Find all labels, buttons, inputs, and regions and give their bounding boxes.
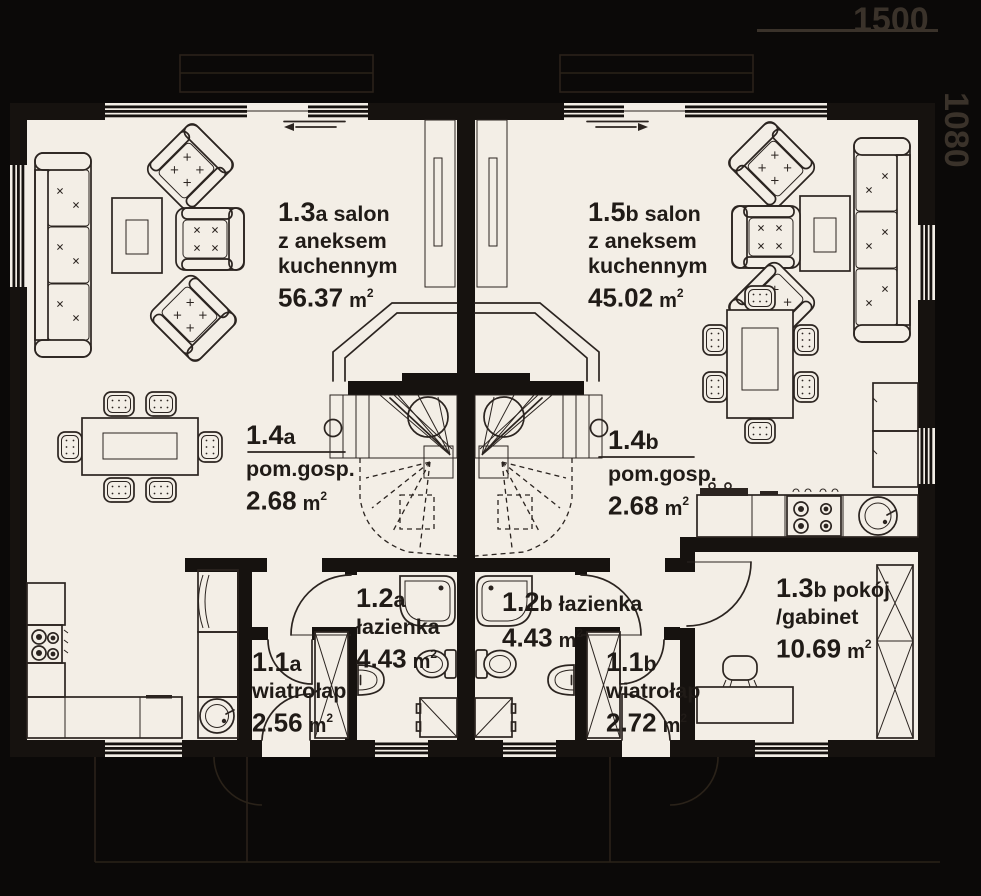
sofa-right (854, 138, 910, 342)
dimension-height-label: 1080 (936, 92, 975, 168)
room-label-wiatrolap-a: 1.1a wiatrołap 2.56m2 (252, 650, 346, 739)
room-label-lazienka-a: 1.2a łazienka 4.43m2 (356, 586, 440, 675)
dimension-width-line (757, 29, 938, 32)
room-label-pokoj-b: 1.3b pokój /gabinet 10.69m2 (776, 576, 890, 665)
floor-plan-page: 1500 1080 1.3a salon z aneksem kuchennym… (0, 0, 981, 896)
room-label-pom-b: 1.4b pom.gosp. 2.68m2 (608, 428, 717, 522)
room-label-lazienka-b: 1.2b łazienka 4.43m2 (502, 590, 642, 654)
sofa-left (35, 153, 91, 357)
floor-plan-drawing (0, 0, 981, 896)
dimension-width-label: 1500 (853, 1, 929, 40)
room-label-wiatrolap-b: 1.1b wiatrołap 2.72m2 (606, 650, 700, 739)
room-label-salon-a: 1.3a salon z aneksem kuchennym 56.37m2 (278, 200, 397, 314)
room-label-pom-a: 1.4a pom.gosp. 2.68m2 (246, 423, 355, 517)
room-label-salon-b: 1.5b salon z aneksem kuchennym 45.02m2 (588, 200, 707, 314)
